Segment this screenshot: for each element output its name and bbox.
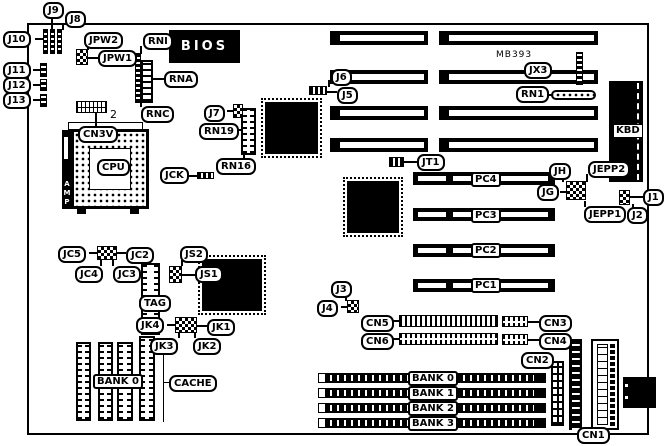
callout-jk2: JK2 — [193, 338, 221, 355]
at-power-pins — [597, 344, 608, 425]
jk-header — [175, 317, 197, 333]
jx3-header — [576, 52, 583, 85]
edge-power-notch — [624, 395, 629, 400]
callout-j8: J8 — [65, 11, 86, 28]
callout-jx3: JX3 — [524, 62, 552, 79]
callout-lead — [528, 339, 539, 341]
pci-slot-label: PC4 — [471, 172, 501, 187]
isa-slot — [439, 31, 598, 45]
simm-bank-label: BANK 0 — [408, 371, 458, 386]
callout-jt1: JT1 — [417, 154, 445, 171]
callout-tag: TAG — [139, 295, 171, 312]
callout-lead — [326, 91, 337, 93]
callout-jpw2: JPW2 — [84, 32, 123, 49]
callout-j3: J3 — [331, 281, 352, 298]
callout-lead — [33, 69, 40, 71]
amp-regulator-slot — [64, 137, 68, 159]
callout-jepp1: JEPP1 — [584, 206, 626, 223]
callout-rn1: RN1 — [516, 86, 549, 103]
jh-jg-jepp-header — [566, 181, 586, 200]
callout-rnc: RNC — [141, 106, 174, 123]
callout-j4: J4 — [317, 300, 338, 317]
cn3-connector — [502, 316, 528, 327]
callout-lead — [328, 80, 330, 87]
callout-jk1: JK1 — [207, 319, 235, 336]
callout-lead — [560, 191, 566, 193]
callout-lead — [528, 321, 539, 323]
cn2-connector — [551, 361, 564, 426]
amp-regulator: AMP — [62, 130, 71, 209]
pci-slot-label: PC2 — [471, 243, 501, 258]
edge-power-connector — [623, 377, 656, 408]
cpu-socket-foot — [130, 209, 139, 214]
cache-socket — [76, 342, 91, 421]
simm-bank-label: BANK 1 — [408, 386, 458, 401]
j5-j6-header — [309, 86, 327, 95]
callout-jc2: JC2 — [126, 247, 154, 264]
callout-rna: RNA — [164, 71, 198, 88]
callout-jpw1: JPW1 — [98, 50, 137, 67]
callout-j10: J10 — [3, 31, 31, 48]
cache-label: CACHE — [169, 375, 217, 392]
callout-cn5: CN5 — [361, 315, 394, 332]
pci-slot-label: PC1 — [471, 278, 501, 293]
at-power-keying — [610, 343, 615, 426]
callout-lead — [189, 175, 197, 177]
callout-jc3: JC3 — [113, 266, 141, 283]
keyboard-connector-label: KBD — [613, 124, 643, 138]
j7-header — [233, 104, 243, 118]
cn3v-connector — [76, 101, 107, 113]
callout-lead — [194, 333, 196, 338]
jc-header — [97, 246, 117, 260]
cn6-connector — [399, 333, 498, 345]
callout-lead — [630, 196, 643, 198]
j3-j4-header — [347, 300, 359, 313]
callout-lead — [62, 24, 64, 30]
callout-lead — [33, 84, 40, 86]
callout-lead — [404, 161, 417, 163]
callout-j13: J13 — [3, 92, 31, 109]
callout-lead — [167, 324, 175, 326]
callout-rni: RNI — [143, 33, 173, 50]
isa-slot — [330, 138, 428, 152]
chipset-ic — [347, 181, 399, 233]
callout-j1: J1 — [643, 189, 664, 206]
callout-js1: JS1 — [195, 266, 223, 283]
callout-lead — [586, 174, 588, 182]
callout-cn6: CN6 — [361, 333, 394, 350]
edge-power-notch — [624, 383, 629, 388]
simm-bank-label: BANK 3 — [408, 416, 458, 431]
callout-lead — [112, 260, 114, 266]
callout-jk3: JK3 — [150, 338, 178, 355]
cache-bank-label: BANK 0 — [93, 374, 143, 389]
callout-lead — [33, 99, 40, 101]
bios-chip: BIOS — [169, 30, 240, 63]
callout-jepp2: JEPP2 — [588, 161, 630, 178]
callout-jh: JH — [549, 163, 571, 180]
callout-cn4: CN4 — [539, 333, 572, 350]
callout-cn3: CN3 — [539, 315, 572, 332]
callout-j6: J6 — [331, 69, 352, 86]
cpu-socket-foot — [77, 209, 86, 214]
callout-lead — [197, 325, 207, 327]
callout-rn19: RN19 — [199, 123, 239, 140]
callout-lead — [584, 201, 586, 207]
motherboard-diagram: PC4 PC3 PC2 PC1 BANK 0 BANK 1 BANK 2 BAN… — [0, 0, 666, 446]
j13-header — [40, 94, 47, 107]
callout-rn16: RN16 — [216, 158, 256, 175]
callout-lead — [89, 252, 97, 254]
j8-header — [57, 29, 62, 54]
at-power-connector — [591, 339, 619, 430]
callout-jc4: JC4 — [75, 266, 103, 283]
rna-network — [141, 60, 153, 103]
callout-jc5: JC5 — [58, 246, 86, 263]
callout-lead — [140, 102, 142, 107]
isa-slot — [439, 106, 598, 120]
callout-lead — [178, 333, 180, 338]
callout-lead — [341, 306, 347, 308]
callout-lead — [95, 112, 97, 126]
cache-bracket — [163, 344, 164, 422]
pci-slot-label: PC3 — [471, 208, 501, 223]
callout-j9: J9 — [43, 2, 64, 19]
isa-slot — [439, 138, 598, 152]
j12-header — [40, 79, 47, 91]
amp-regulator-label: AMP — [63, 180, 71, 208]
callout-lead — [227, 110, 233, 112]
cn1-connector — [569, 339, 582, 430]
callout-cn3v: CN3V — [78, 126, 118, 143]
cn4-connector — [502, 334, 528, 345]
callout-js2: JS2 — [180, 246, 208, 263]
callout-lead — [554, 70, 576, 72]
jck-header — [197, 172, 214, 179]
cn5-connector — [399, 315, 498, 327]
chipset-ic — [265, 102, 318, 154]
js-header — [169, 266, 182, 283]
callout-j2: J2 — [627, 207, 648, 224]
cn3v-pin-note: 2 — [110, 110, 117, 120]
j9-header — [50, 29, 55, 54]
callout-jck: JCK — [160, 167, 189, 184]
callout-lead — [182, 274, 195, 276]
rn19-rn16-network — [241, 108, 256, 155]
callout-cn2: CN2 — [521, 352, 554, 369]
j9-header — [43, 29, 48, 54]
simm-bank-label: BANK 2 — [408, 401, 458, 416]
rn1-network — [551, 90, 596, 100]
callout-lead — [100, 260, 102, 266]
board-model-text: MB393 — [496, 50, 532, 60]
isa-slot — [330, 106, 428, 120]
callout-lead — [35, 38, 43, 40]
callout-jk4: JK4 — [136, 317, 164, 334]
isa-slot — [330, 31, 428, 45]
j11-header — [40, 63, 47, 77]
callout-j5: J5 — [337, 87, 358, 104]
callout-lead — [152, 78, 164, 80]
callout-lead — [117, 252, 126, 254]
cpu-label: CPU — [97, 159, 130, 176]
callout-cn1: CN1 — [577, 427, 610, 444]
callout-jg: JG — [537, 184, 559, 201]
callout-lead — [140, 46, 142, 54]
jt1-header — [389, 157, 404, 167]
callout-lead — [87, 57, 98, 59]
isa-slot — [439, 70, 598, 84]
j1-j2-header — [619, 190, 630, 205]
callout-j7: J7 — [204, 105, 225, 122]
